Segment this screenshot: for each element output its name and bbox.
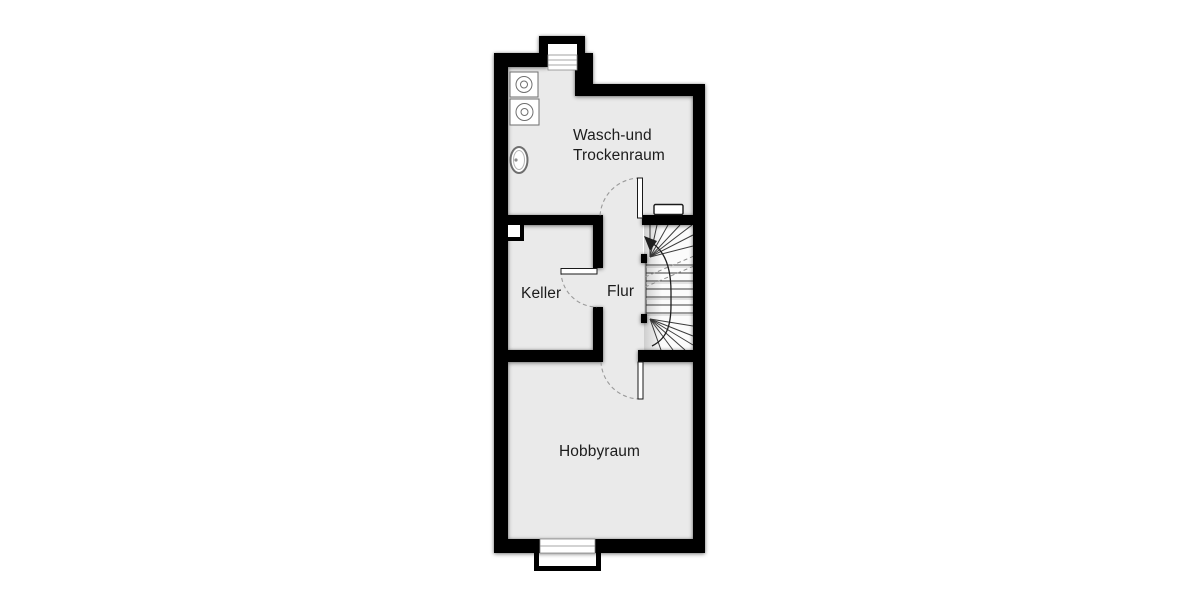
wall-keller-flur-upper <box>593 225 603 268</box>
staircase <box>643 225 694 350</box>
stair-wall-stub-lower <box>641 314 647 323</box>
sink-icon <box>511 147 528 173</box>
wall-outer-right <box>693 84 705 553</box>
window-top-glass <box>548 55 577 70</box>
window-bottom <box>534 539 601 571</box>
wall-wasch-stairs-right <box>642 215 693 225</box>
label-wasch-line2: Trockenraum <box>573 147 665 164</box>
chimney-duct <box>508 225 524 241</box>
washing-machine-icon <box>510 99 539 125</box>
floor-left-column <box>508 67 575 539</box>
door-leaf <box>638 362 643 399</box>
wall-outer-left <box>494 53 508 553</box>
wall-hobby-top-right <box>638 350 693 362</box>
wall-wasch-keller-left <box>508 215 603 225</box>
window-top-well-interior <box>548 44 577 55</box>
label-wasch-line1: Wasch-und <box>573 127 652 144</box>
washing-machine-icon <box>510 72 538 97</box>
label-hobbyraum: Hobbyraum <box>559 443 640 460</box>
wall-hobby-top-left <box>508 350 603 362</box>
stair-wall-stub-upper <box>641 254 647 263</box>
door-leaf <box>561 269 597 275</box>
floor-plan-canvas: Wasch-und Trockenraum Keller Flur Hobbyr… <box>0 0 1200 600</box>
label-flur: Flur <box>607 283 634 300</box>
floor-plan: Wasch-und Trockenraum Keller Flur Hobbyr… <box>0 0 1200 600</box>
wall-outer-top-right <box>585 84 705 96</box>
window-well-left-side <box>539 36 548 58</box>
label-keller: Keller <box>521 285 561 302</box>
window-top <box>548 44 577 70</box>
wall-outer-bottom <box>494 539 705 553</box>
window-bottom-well-frame <box>534 553 601 571</box>
door-leaf <box>638 178 643 218</box>
radiator <box>654 205 683 215</box>
